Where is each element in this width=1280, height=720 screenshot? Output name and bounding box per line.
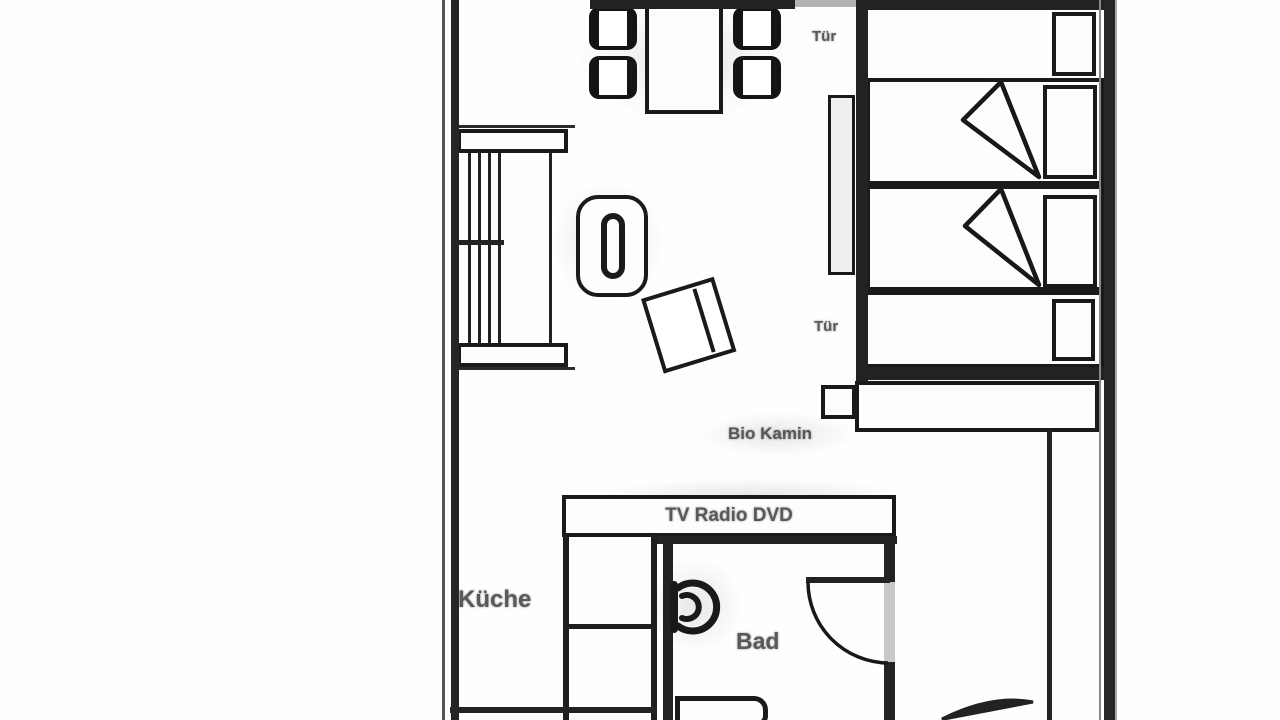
dining-chair: [733, 56, 781, 99]
bio-fireplace-label: Bio Kamin: [728, 424, 812, 444]
wall-top-door-gap: [795, 0, 857, 7]
wall-kitchen-bottom: [450, 707, 657, 713]
sofa-back-slat: [498, 153, 501, 343]
door-panel: [828, 95, 855, 275]
dining-chair: [589, 56, 637, 99]
door-label-top: Tür: [812, 28, 836, 45]
kitchen-label: Küche: [458, 586, 531, 614]
bed-3-pillow: [1052, 299, 1095, 361]
dining-chair: [589, 7, 637, 50]
wall-top-right-segment: [857, 0, 1112, 10]
sofa-back-slat: [468, 153, 471, 343]
sofa-top-line: [455, 125, 575, 128]
bed-1-pillow: [1043, 85, 1097, 179]
kitchen-counter-divider: [569, 624, 651, 629]
entry-door-arc: [942, 700, 1033, 719]
wall-bathroom-right: [884, 536, 895, 582]
wall-right-inner: [1099, 0, 1101, 720]
wall-right-outer: [1104, 0, 1115, 720]
dining-table: [645, 2, 723, 114]
chair-rotated-backrest-line: [692, 288, 715, 352]
nightstand: [1052, 12, 1096, 76]
wall-top-left-segment: [590, 0, 795, 9]
bed-2-pillow: [1043, 195, 1097, 288]
bathroom-door-arc: [808, 582, 888, 663]
wall-bedroom-bottom: [856, 367, 1112, 380]
sideboard: [855, 381, 1099, 432]
bathroom-door-leaf: [806, 577, 890, 583]
wall-right-edge: [1115, 0, 1117, 720]
bathroom-door-opening: [884, 582, 895, 662]
wall-divider-living-bedroom: [856, 0, 868, 381]
sofa-seat-edge: [549, 153, 552, 343]
sofa-armrest-bottom: [457, 343, 568, 367]
wall-bathroom-left: [663, 536, 673, 720]
wall-bathroom-right: [884, 662, 895, 720]
bio-fireplace-box: [821, 385, 856, 419]
tv-cabinet-label: TV Radio DVD: [665, 505, 793, 527]
door-label-bedroom: Tür: [814, 318, 838, 335]
sofa-back-slat: [488, 153, 491, 343]
sofa-armrest-top: [457, 129, 568, 153]
floorplan-canvas: TV Radio DVD Tür Tür B: [0, 0, 1280, 720]
sofa-divider-tick: [458, 240, 504, 245]
wall-bathroom-top: [657, 536, 897, 544]
armchair-cushion: [601, 213, 625, 279]
tv-cabinet: TV Radio DVD: [562, 495, 896, 537]
corridor-wall: [1047, 430, 1052, 720]
kitchen-counter: [563, 534, 657, 720]
dining-chair: [733, 7, 781, 50]
sink: [675, 696, 768, 720]
sofa-bottom-line: [455, 367, 575, 370]
wall-left-outer: [442, 0, 445, 720]
bathroom-label: Bad: [736, 628, 779, 655]
sofa-back-slat: [478, 153, 481, 343]
